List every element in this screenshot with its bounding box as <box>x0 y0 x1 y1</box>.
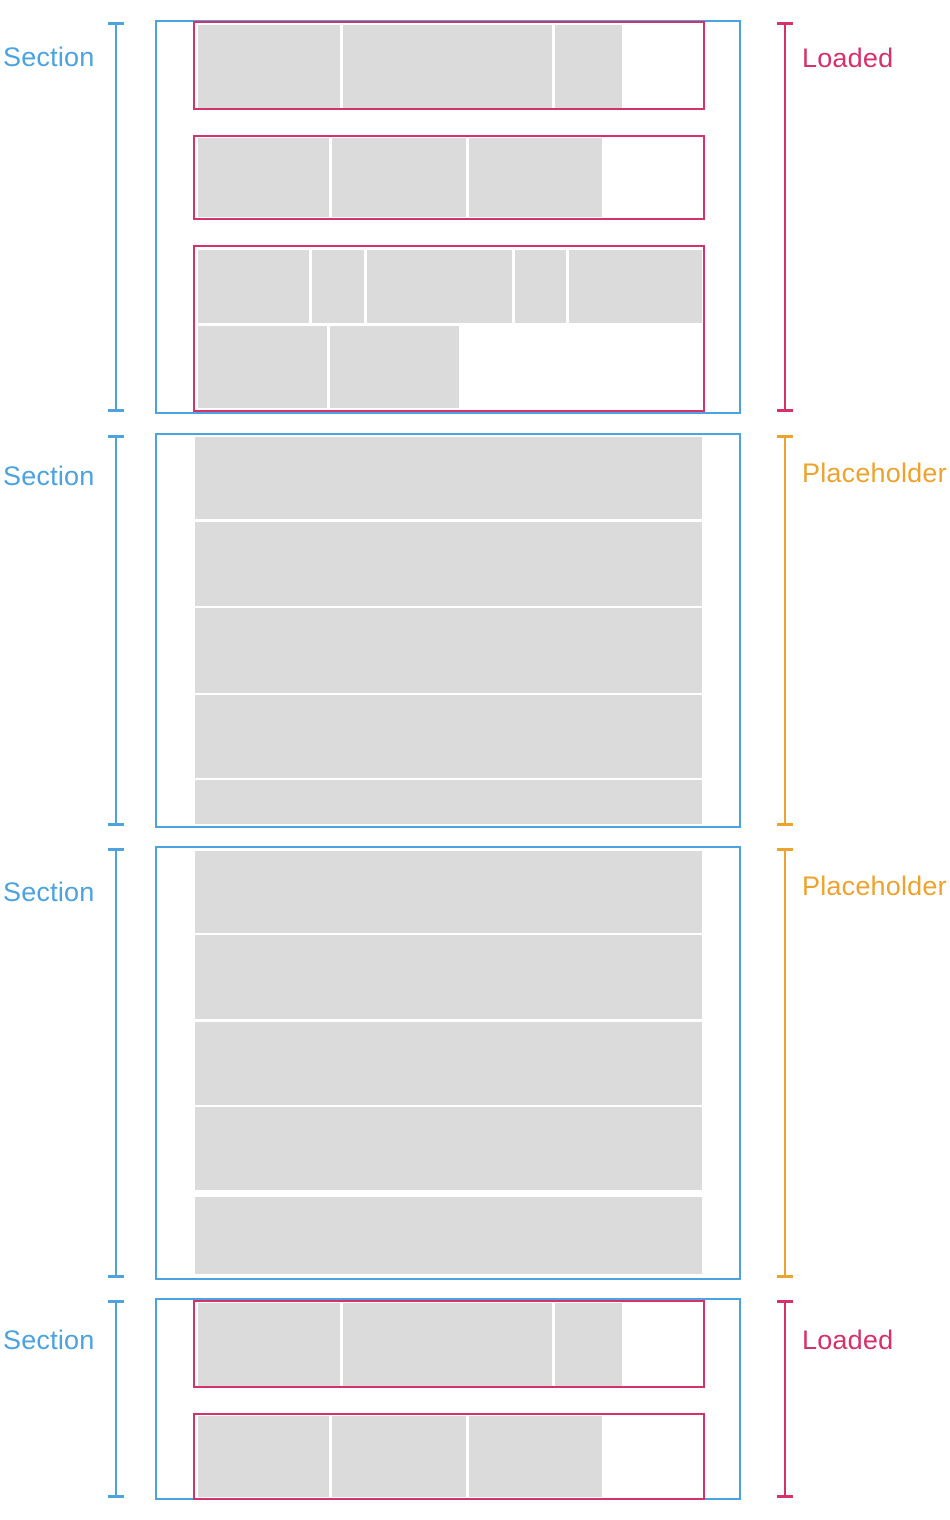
bracket-cap-top <box>108 1300 124 1303</box>
skeleton-block <box>198 138 329 217</box>
section-box <box>155 846 741 1280</box>
state-label: Placeholder <box>802 460 947 487</box>
state-height-bracket <box>777 1300 793 1498</box>
bracket-cap-bottom <box>108 823 124 826</box>
placeholder-row <box>195 608 702 693</box>
skeleton-block <box>198 25 340 108</box>
state-label: Placeholder <box>802 873 947 900</box>
skeleton-block <box>198 250 309 323</box>
placeholder-row <box>195 935 702 1019</box>
bracket-cap-top <box>777 435 793 438</box>
skeleton-block <box>198 1303 340 1386</box>
skeleton-block <box>332 1416 466 1497</box>
bracket-cap-bottom <box>108 1275 124 1278</box>
skeleton-block <box>367 250 512 323</box>
bracket-cap-bottom <box>108 1495 124 1498</box>
section-label: Section <box>3 879 94 906</box>
bracket-cap-top <box>777 1300 793 1303</box>
state-label: Loaded <box>802 45 893 72</box>
bracket-line <box>784 1300 786 1498</box>
skeleton-sections-diagram: SectionLoadedSectionPlaceholderSectionPl… <box>0 0 950 1520</box>
bracket-cap-top <box>777 848 793 851</box>
bracket-line <box>784 22 786 412</box>
bracket-cap-top <box>108 435 124 438</box>
state-height-bracket <box>777 435 793 826</box>
bracket-cap-top <box>108 848 124 851</box>
section-box <box>155 433 741 828</box>
placeholder-row <box>195 695 702 778</box>
state-label: Loaded <box>802 1327 893 1354</box>
placeholder-row <box>195 851 702 933</box>
skeleton-block <box>198 1416 329 1497</box>
skeleton-block <box>469 138 602 217</box>
section-label: Section <box>3 463 94 490</box>
skeleton-block <box>515 250 566 323</box>
loaded-content-outline <box>193 245 705 412</box>
section-height-bracket <box>108 435 124 826</box>
section-label: Section <box>3 1327 94 1354</box>
section-height-bracket <box>108 848 124 1278</box>
bracket-cap-top <box>777 22 793 25</box>
skeleton-block <box>555 25 622 108</box>
section-height-bracket <box>108 22 124 412</box>
loaded-content-outline <box>193 21 705 110</box>
section-label: Section <box>3 44 94 71</box>
loaded-content-outline <box>193 135 705 220</box>
skeleton-block <box>332 138 466 217</box>
loaded-content-outline <box>193 1413 705 1500</box>
placeholder-row <box>195 780 702 824</box>
bracket-cap-bottom <box>777 823 793 826</box>
section-box <box>155 1298 741 1500</box>
skeleton-block <box>343 1303 552 1386</box>
bracket-cap-bottom <box>777 1495 793 1498</box>
bracket-line <box>115 1300 117 1498</box>
placeholder-row <box>195 522 702 606</box>
state-height-bracket <box>777 848 793 1278</box>
skeleton-block <box>569 250 702 323</box>
loaded-content-outline <box>193 1300 705 1388</box>
bracket-line <box>784 848 786 1278</box>
bracket-cap-top <box>108 22 124 25</box>
bracket-line <box>115 22 117 412</box>
bracket-line <box>784 435 786 826</box>
skeleton-block <box>469 1416 602 1497</box>
bracket-line <box>115 848 117 1278</box>
skeleton-block <box>198 326 327 408</box>
skeleton-block <box>555 1303 622 1386</box>
skeleton-block <box>343 25 552 108</box>
state-height-bracket <box>777 22 793 412</box>
bracket-line <box>115 435 117 826</box>
bracket-cap-bottom <box>777 1275 793 1278</box>
skeleton-block <box>312 250 364 323</box>
placeholder-row <box>195 1107 702 1190</box>
placeholder-row <box>195 437 702 519</box>
placeholder-row <box>195 1197 702 1274</box>
placeholder-row <box>195 1022 702 1105</box>
skeleton-block <box>330 326 459 408</box>
section-height-bracket <box>108 1300 124 1498</box>
bracket-cap-bottom <box>108 409 124 412</box>
section-box <box>155 20 741 414</box>
bracket-cap-bottom <box>777 409 793 412</box>
